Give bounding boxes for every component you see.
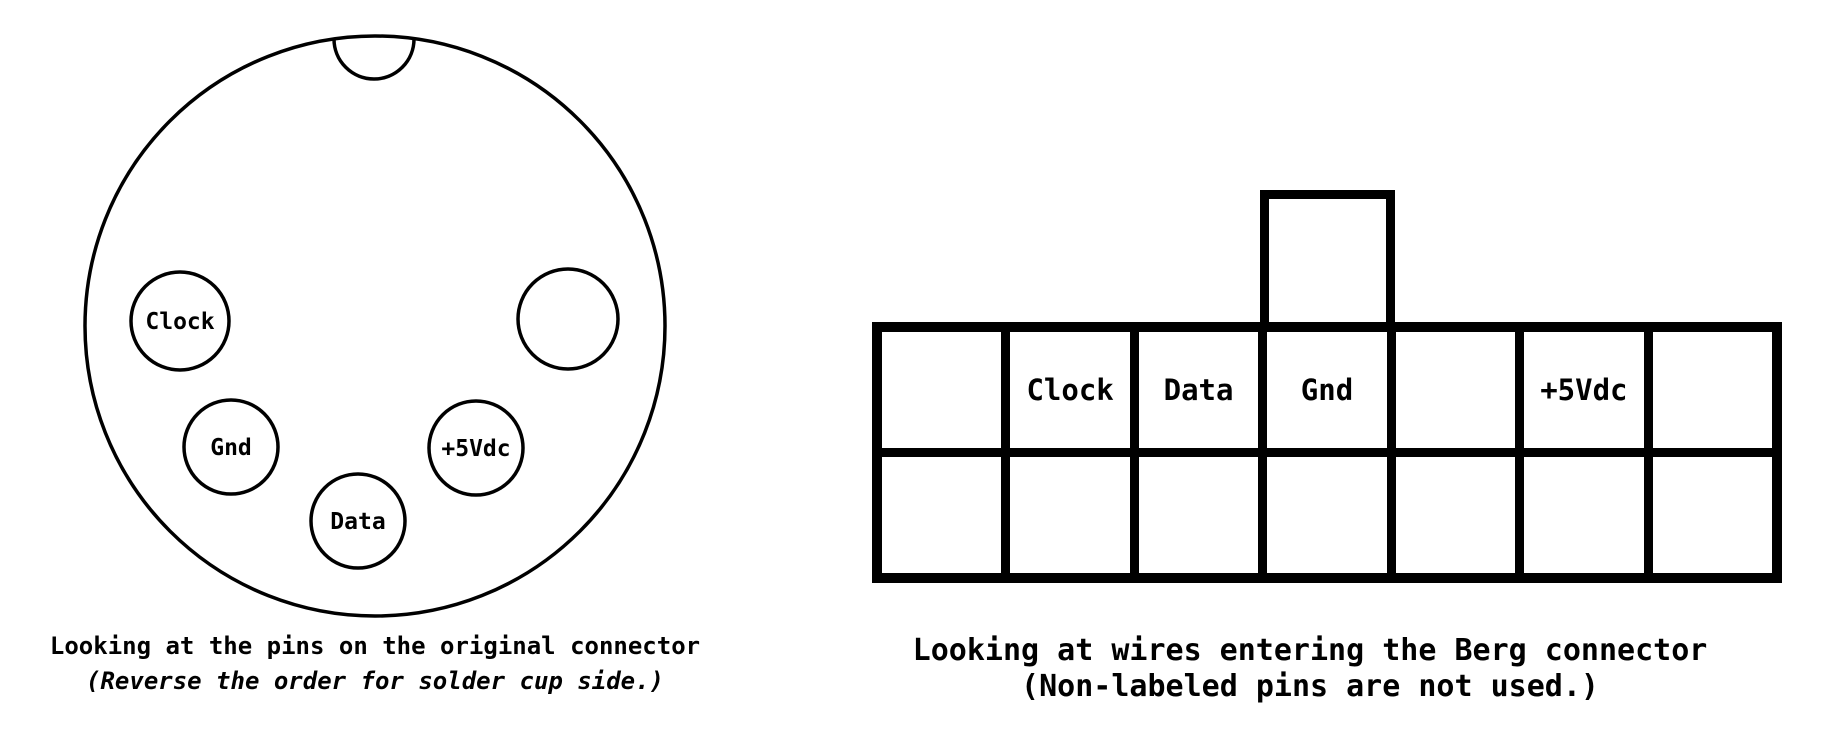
diagram-canvas: Clock Gnd +5Vdc Data Looking at the pins… (0, 0, 1845, 736)
berg-caption-line2: (Non-labeled pins are not used.) (875, 669, 1745, 704)
berg-cell-label-data: Data (1164, 373, 1234, 407)
pin-label-gnd: Gnd (210, 435, 252, 461)
berg-caption-line1: Looking at wires entering the Berg conne… (875, 633, 1745, 668)
berg-cell-r1c4: Gnd (1267, 332, 1386, 448)
din-caption-line2: (Reverse the order for solder cup side.) (30, 667, 720, 695)
berg-cell-label-gnd: Gnd (1301, 373, 1353, 407)
berg-connector-grid: Clock Data Gnd +5Vdc (872, 322, 1782, 583)
berg-cell-r1c1 (882, 332, 1001, 448)
berg-cell-r2c7 (1653, 457, 1772, 573)
berg-cell-label-5vdc: +5Vdc (1540, 373, 1627, 407)
berg-cell-r2c2 (1010, 457, 1129, 573)
berg-cell-r2c4 (1267, 457, 1386, 573)
pin-label-5vdc: +5Vdc (441, 436, 510, 462)
pin-label-clock: Clock (145, 309, 214, 335)
berg-cell-label-clock: Clock (1026, 373, 1113, 407)
berg-polarizing-tab (1260, 190, 1395, 331)
berg-cell-r1c5 (1396, 332, 1515, 448)
berg-cell-r2c1 (882, 457, 1001, 573)
berg-cell-r1c6: +5Vdc (1524, 332, 1643, 448)
keyway-notch (334, 39, 414, 79)
berg-cell-r2c5 (1396, 457, 1515, 573)
pin-label-data: Data (330, 509, 385, 535)
berg-cell-r2c3 (1139, 457, 1258, 573)
berg-cell-r2c6 (1524, 457, 1643, 573)
din-connector-diagram: Clock Gnd +5Vdc Data (0, 0, 740, 630)
berg-cell-r1c2: Clock (1010, 332, 1129, 448)
berg-cell-r1c3: Data (1139, 332, 1258, 448)
pin-circle-unlabeled (518, 269, 618, 369)
din-caption-line1: Looking at the pins on the original conn… (30, 632, 720, 660)
berg-cell-r1c7 (1653, 332, 1772, 448)
